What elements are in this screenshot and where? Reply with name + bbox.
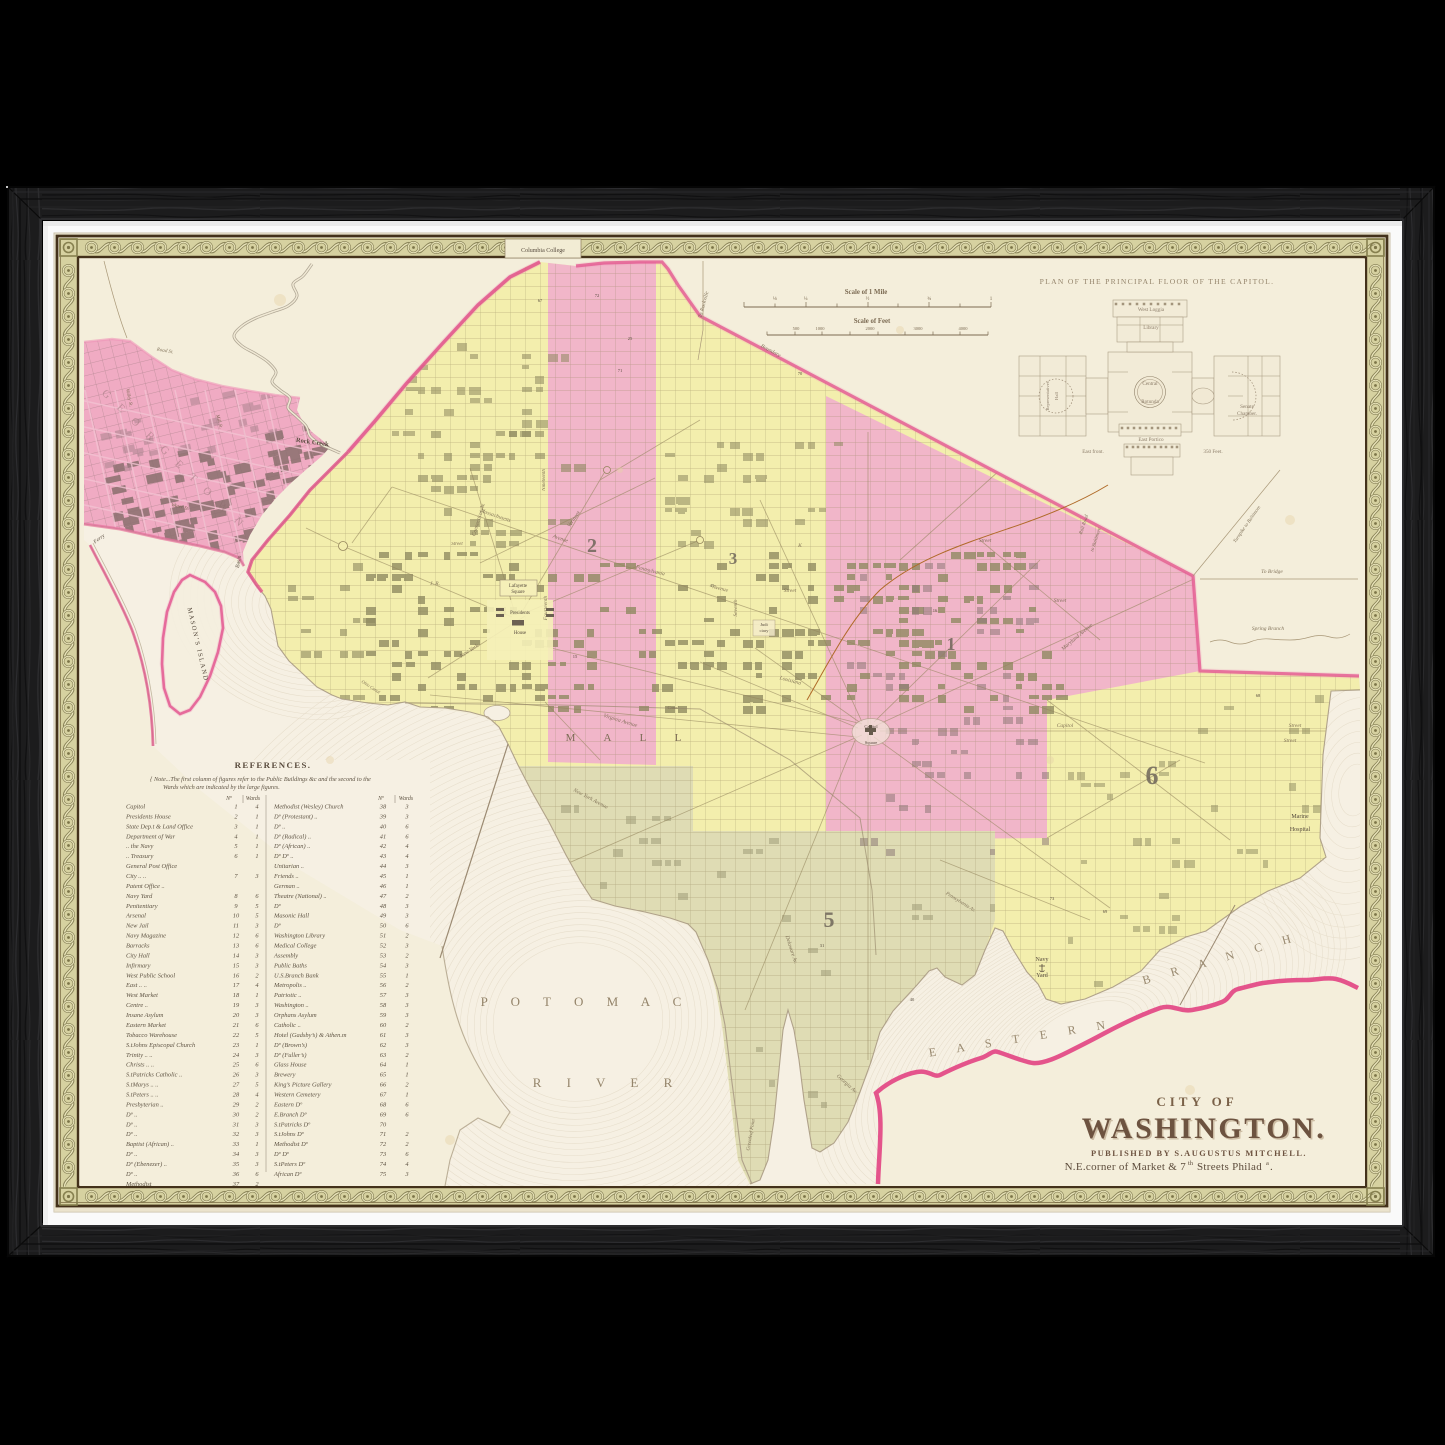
svg-text:Trinity .. ..: Trinity .. .. [126, 1052, 153, 1059]
svg-text:.: . [1270, 1161, 1273, 1173]
svg-text:40: 40 [910, 997, 915, 1002]
svg-text:1: 1 [255, 853, 258, 860]
svg-text:42: 42 [380, 843, 387, 850]
svg-text:5: 5 [255, 913, 258, 920]
svg-text:1: 1 [405, 883, 408, 890]
svg-text:75: 75 [380, 1171, 386, 1178]
svg-text:Central: Central [1142, 381, 1158, 387]
svg-text:5: 5 [824, 907, 835, 932]
svg-text:West Loggia: West Loggia [1138, 307, 1165, 313]
svg-text:.. the Navy: .. the Navy [126, 843, 153, 850]
svg-text:Dº ..: Dº .. [273, 823, 286, 830]
svg-text:Public Baths: Public Baths [273, 962, 307, 969]
svg-text:56: 56 [380, 982, 387, 989]
svg-text:68: 68 [1256, 693, 1261, 698]
svg-text:1: 1 [405, 972, 408, 979]
svg-text:3000: 3000 [914, 326, 924, 331]
svg-text:27: 27 [233, 1082, 240, 1089]
svg-text:th: th [1188, 1160, 1194, 1167]
svg-text:Dº (Brown’s): Dº (Brown’s) [273, 1042, 307, 1049]
svg-text:3: 3 [254, 1151, 258, 1158]
svg-text:72: 72 [595, 293, 600, 298]
svg-text:5: 5 [234, 843, 237, 850]
svg-text:55: 55 [380, 972, 386, 979]
svg-text:Washington ..: Washington .. [274, 1002, 309, 1009]
svg-text:14: 14 [233, 952, 240, 959]
svg-text:70: 70 [380, 1121, 387, 1128]
svg-text:Rotunda: Rotunda [1141, 399, 1159, 405]
svg-text:Hospital: Hospital [1290, 827, 1311, 833]
svg-text:African Dº: African Dº [273, 1171, 302, 1178]
svg-text:House: House [514, 631, 526, 636]
svg-text:.. Treasury: .. Treasury [126, 853, 153, 860]
svg-text:S.tMarys .. ..: S.tMarys .. .. [126, 1082, 159, 1089]
svg-text:3: 3 [404, 903, 408, 910]
svg-text:48: 48 [380, 903, 387, 910]
svg-text:3: 3 [404, 962, 408, 969]
svg-text:Square: Square [865, 740, 878, 745]
svg-text:30: 30 [232, 1111, 240, 1118]
svg-text:54: 54 [380, 962, 387, 969]
svg-text:3: 3 [404, 1171, 408, 1178]
svg-text:Scale of Feet: Scale of Feet [854, 318, 891, 325]
svg-text:50: 50 [380, 923, 387, 930]
svg-text:37: 37 [232, 1181, 240, 1188]
svg-text:1: 1 [405, 873, 408, 880]
svg-text:25: 25 [628, 336, 633, 341]
svg-text:S.tPeters Dº: S.tPeters Dº [274, 1161, 306, 1168]
svg-text:47: 47 [380, 893, 387, 900]
svg-text:S.tJohns Dº: S.tJohns Dº [274, 1131, 305, 1138]
svg-text:Brewery: Brewery [274, 1072, 296, 1079]
svg-text:43: 43 [380, 853, 386, 860]
svg-text:35: 35 [232, 1161, 239, 1168]
svg-text:Seventh: Seventh [733, 599, 739, 616]
svg-text:West Market: West Market [126, 992, 158, 999]
svg-text:Masonic Hall: Masonic Hall [273, 913, 309, 920]
svg-text:Orphans Asylum: Orphans Asylum [274, 1012, 317, 1019]
svg-text:31: 31 [820, 943, 825, 948]
svg-text:Navy Yard: Navy Yard [125, 893, 153, 900]
svg-text:R I V E R: R I V E R [533, 1075, 684, 1090]
svg-text:350 Feet.: 350 Feet. [1203, 449, 1222, 455]
svg-text:U.S.Branch Bank: U.S.Branch Bank [274, 972, 319, 979]
svg-text:57: 57 [380, 992, 387, 999]
svg-text:⅛: ⅛ [773, 297, 777, 302]
svg-text:3: 3 [729, 549, 738, 568]
svg-text:Canal: Canal [667, 705, 679, 710]
svg-text:36: 36 [232, 1171, 240, 1178]
svg-text:Presbyterian ..: Presbyterian .. [125, 1101, 164, 1108]
svg-text:500: 500 [793, 326, 801, 331]
svg-text:3: 3 [404, 1042, 408, 1049]
svg-text:1: 1 [234, 804, 237, 811]
svg-text:General Post Office: General Post Office [126, 863, 177, 870]
svg-text:3: 3 [404, 813, 408, 820]
svg-text:25: 25 [233, 1062, 239, 1069]
svg-text:16: 16 [233, 972, 240, 979]
svg-text:Presidents: Presidents [510, 611, 530, 616]
svg-text:Capitol: Capitol [1057, 723, 1074, 729]
svg-text:Baptist (African) ..: Baptist (African) .. [126, 1141, 174, 1148]
svg-text:74: 74 [380, 1161, 387, 1168]
svg-text:Columbia College: Columbia College [521, 248, 565, 254]
svg-text:City .. ..: City .. .. [126, 873, 147, 880]
svg-text:Street: Street [451, 542, 463, 547]
svg-text:52: 52 [380, 943, 387, 950]
svg-text:63: 63 [380, 1052, 386, 1059]
svg-text:49: 49 [380, 913, 387, 920]
svg-text:70: 70 [798, 371, 803, 376]
svg-text:K: K [797, 543, 802, 549]
svg-text:Theatre (National) ..: Theatre (National) .. [274, 893, 327, 900]
svg-text:2: 2 [587, 535, 597, 557]
svg-text:1: 1 [255, 1042, 258, 1049]
svg-text:40: 40 [380, 823, 387, 830]
svg-text:Unitarian ..: Unitarian .. [274, 863, 304, 870]
svg-text:1: 1 [405, 1062, 408, 1069]
svg-text:West Public School: West Public School [126, 972, 175, 979]
svg-text:Scale of 1 Mile: Scale of 1 Mile [845, 289, 887, 296]
svg-text:1: 1 [947, 634, 956, 654]
svg-text:3: 3 [254, 952, 258, 959]
svg-text:Medical College: Medical College [273, 943, 317, 950]
svg-text:Dº Dº ..: Dº Dº .. [273, 853, 294, 860]
svg-text:51: 51 [380, 933, 386, 940]
svg-text:Dº Dº: Dº Dº [273, 1151, 290, 1158]
svg-text:Hotel (Gadsby’s) & Athen.m: Hotel (Gadsby’s) & Athen.m [273, 1032, 347, 1039]
svg-text:3: 3 [254, 923, 258, 930]
svg-text:Senate: Senate [1240, 404, 1255, 410]
svg-text:73: 73 [1050, 896, 1055, 901]
svg-text:15: 15 [573, 654, 578, 659]
svg-text:23: 23 [233, 1042, 239, 1049]
svg-text:Penitentiary: Penitentiary [125, 903, 158, 910]
svg-text:17: 17 [233, 982, 240, 989]
svg-text:71: 71 [618, 368, 623, 373]
svg-text:Street: Street [1284, 738, 1297, 744]
svg-text:Hall: Hall [1054, 391, 1059, 400]
svg-text:Dº (Fuller’s): Dº (Fuller’s) [273, 1052, 306, 1059]
svg-text:44: 44 [380, 863, 387, 870]
svg-text:3: 3 [254, 873, 258, 880]
svg-text:3: 3 [254, 1072, 258, 1079]
svg-text:Wards which are indicated by t: Wards which are indicated by the large f… [163, 784, 280, 791]
svg-text:a: a [1266, 1160, 1269, 1167]
svg-text:67: 67 [538, 298, 543, 303]
svg-text:72: 72 [380, 1141, 387, 1148]
svg-text:Patriotic ..: Patriotic .. [273, 992, 302, 999]
svg-text:1: 1 [255, 843, 258, 850]
svg-text:29: 29 [233, 1101, 240, 1108]
svg-text:Spring Branch: Spring Branch [1252, 626, 1284, 632]
svg-text:21: 21 [233, 1022, 239, 1029]
svg-text:German ..: German .. [274, 883, 300, 890]
svg-text:Navy: Navy [1036, 957, 1049, 963]
svg-text:Dº ..: Dº .. [125, 1131, 138, 1138]
svg-text:46: 46 [380, 883, 387, 890]
svg-text:Navy Magazine: Navy Magazine [125, 933, 166, 940]
svg-text:18: 18 [233, 992, 240, 999]
svg-text:Glass House: Glass House [274, 1062, 307, 1069]
svg-text:6: 6 [1146, 761, 1159, 790]
svg-text:10: 10 [233, 913, 240, 920]
svg-text:Washington Library: Washington Library [274, 933, 325, 940]
svg-text:Christs .. ..: Christs .. .. [126, 1062, 154, 1069]
svg-text:60: 60 [380, 1022, 387, 1029]
svg-text:3: 3 [404, 992, 408, 999]
svg-text:3: 3 [404, 913, 408, 920]
svg-text:Square: Square [511, 590, 524, 595]
svg-text:Dº: Dº [273, 903, 282, 910]
svg-text:Catholic ..: Catholic .. [274, 1022, 301, 1029]
svg-text:3: 3 [254, 962, 258, 969]
svg-text:Methodist: Methodist [125, 1181, 152, 1188]
svg-text:12: 12 [233, 933, 240, 940]
svg-text:S.tPatricks Catholic ..: S.tPatricks Catholic .. [126, 1072, 183, 1079]
svg-text:5: 5 [255, 1082, 258, 1089]
svg-text:2000: 2000 [866, 326, 876, 331]
svg-text:Metropolis ..: Metropolis .. [273, 982, 307, 989]
svg-text:3: 3 [404, 1012, 408, 1019]
svg-text:66: 66 [380, 1082, 387, 1089]
svg-text:East front.: East front. [1082, 448, 1104, 455]
svg-text:Western Cemetery: Western Cemetery [274, 1091, 321, 1098]
svg-text:Fourteenth: Fourteenth [543, 596, 549, 622]
svg-text:24: 24 [233, 1052, 240, 1059]
svg-text:PLAN OF THE PRINCIPAL FLOOR OF: PLAN OF THE PRINCIPAL FLOOR OF THE CAPIT… [1040, 277, 1275, 286]
svg-text:Nº: Nº [377, 796, 384, 802]
svg-text:1: 1 [405, 1072, 408, 1079]
svg-text:3: 3 [254, 1052, 258, 1059]
svg-text:41: 41 [380, 833, 386, 840]
svg-text:Methodist (Wesley) Church: Methodist (Wesley) Church [273, 804, 343, 811]
svg-text:3: 3 [404, 863, 408, 870]
svg-text:New Jail: New Jail [125, 923, 149, 930]
svg-text:Friends ..: Friends .. [273, 873, 299, 880]
svg-text:Eastern Market: Eastern Market [125, 1022, 166, 1029]
svg-text:22: 22 [233, 1032, 240, 1039]
svg-text:Yard: Yard [1036, 973, 1047, 979]
svg-text:Dº ..: Dº .. [125, 1111, 138, 1118]
svg-text:Assembly: Assembly [273, 952, 298, 959]
svg-text:M A L L: M A L L [566, 732, 695, 744]
svg-text:King’s Picture Gallery: King’s Picture Gallery [273, 1082, 332, 1089]
svg-text:N.E.corner of Market & 7: N.E.corner of Market & 7 [1065, 1161, 1187, 1173]
svg-text:Dº (Protestant) ..: Dº (Protestant) .. [273, 813, 318, 820]
svg-text:1000: 1000 [816, 326, 826, 331]
svg-text:3: 3 [254, 1012, 258, 1019]
svg-text:Street: Street [1289, 723, 1302, 729]
svg-text:Street: Street [979, 538, 992, 544]
svg-text:3: 3 [254, 1131, 258, 1138]
svg-text:Dº ..: Dº .. [125, 1121, 138, 1128]
svg-text:Wards: Wards [246, 796, 261, 802]
svg-text:5: 5 [255, 1032, 258, 1039]
svg-text:32: 32 [232, 1131, 240, 1138]
svg-text:CITY OF: CITY OF [1156, 1094, 1237, 1109]
svg-text:Capitol: Capitol [126, 804, 145, 811]
svg-text:Centre ..: Centre .. [126, 1002, 148, 1009]
svg-text:Dº (Ebenezer) ..: Dº (Ebenezer) .. [125, 1161, 167, 1168]
svg-text:½: ½ [866, 297, 870, 302]
svg-text:Patent Office ..: Patent Office .. [125, 883, 165, 890]
svg-text:62: 62 [380, 1042, 387, 1049]
svg-text:28: 28 [233, 1091, 240, 1098]
svg-text:Library: Library [1143, 325, 1159, 331]
svg-text:45: 45 [710, 583, 715, 588]
svg-text:15: 15 [233, 962, 239, 969]
svg-text:20: 20 [233, 1012, 240, 1019]
svg-text:Tobacco Warehouse: Tobacco Warehouse [126, 1032, 177, 1039]
svg-text:1: 1 [255, 813, 258, 820]
svg-text:53: 53 [380, 952, 386, 959]
svg-text:34: 34 [232, 1151, 240, 1158]
svg-text:64: 64 [380, 1062, 387, 1069]
svg-text:Eastern Dº: Eastern Dº [273, 1101, 303, 1108]
svg-text:WASHINGTON.: WASHINGTON. [1082, 1112, 1327, 1145]
svg-text:59: 59 [380, 1012, 387, 1019]
svg-text:Nineteenth: Nineteenth [542, 469, 547, 492]
svg-text:3: 3 [404, 1032, 408, 1039]
svg-text:P O T O M A C: P O T O M A C [481, 994, 692, 1009]
svg-text:J. R.: J. R. [430, 581, 440, 587]
svg-text:39: 39 [379, 813, 387, 820]
svg-text:3: 3 [404, 943, 408, 950]
svg-text:38: 38 [379, 804, 387, 811]
svg-text:East .. ..: East .. .. [125, 982, 147, 989]
svg-text:Department of War: Department of War [125, 833, 176, 840]
svg-text:3: 3 [254, 1002, 258, 1009]
svg-text:58: 58 [380, 1002, 387, 1009]
svg-text:City Hall: City Hall [126, 952, 150, 959]
svg-text:To Bridge: To Bridge [1261, 569, 1283, 575]
svg-text:Dº (Radical) ..: Dº (Radical) .. [273, 833, 312, 840]
svg-text:3: 3 [404, 1002, 408, 1009]
svg-text:Dº ..: Dº .. [125, 1171, 138, 1178]
svg-text:3: 3 [233, 823, 237, 830]
svg-text:71: 71 [380, 1131, 386, 1138]
svg-text:68: 68 [380, 1101, 387, 1108]
svg-text:Nº: Nº [225, 796, 232, 802]
svg-text:45: 45 [380, 873, 386, 880]
svg-text:Barracks: Barracks [126, 943, 150, 950]
svg-text:S.tPatricks Dº: S.tPatricks Dº [274, 1121, 311, 1128]
svg-text:¾: ¾ [927, 297, 931, 302]
svg-text:Street: Street [1054, 598, 1067, 604]
svg-text:Wards: Wards [399, 796, 414, 802]
svg-text:ciary: ciary [760, 628, 770, 633]
svg-text:Chamber.: Chamber. [1237, 411, 1257, 417]
svg-text:Dº ..: Dº .. [125, 1151, 138, 1158]
svg-text:1: 1 [255, 833, 258, 840]
svg-text:Marine: Marine [1291, 814, 1309, 820]
svg-text:Streets Philad: Streets Philad [1197, 1161, 1262, 1173]
svg-text:Street: Street [784, 588, 797, 594]
svg-text:1: 1 [255, 1141, 258, 1148]
svg-text:13: 13 [233, 943, 239, 950]
svg-text:67: 67 [380, 1091, 387, 1098]
svg-text:1: 1 [255, 992, 258, 999]
svg-text:Methodist Dº: Methodist Dº [273, 1141, 309, 1148]
svg-text:69: 69 [1103, 909, 1108, 914]
svg-text:S.tPeters .. ..: S.tPeters .. .. [126, 1091, 159, 1098]
svg-text:31: 31 [232, 1121, 239, 1128]
svg-text:Lafayette: Lafayette [509, 584, 527, 589]
svg-text:26: 26 [233, 1072, 240, 1079]
svg-text:Insane Asylum: Insane Asylum [125, 1012, 164, 1019]
svg-text:Dº (African) ..: Dº (African) .. [273, 843, 311, 850]
svg-text:¼: ¼ [804, 297, 808, 302]
svg-text:Judi: Judi [760, 622, 768, 627]
svg-text:1: 1 [405, 1091, 408, 1098]
svg-text:3: 3 [404, 804, 408, 811]
svg-text:E.Branch Dº: E.Branch Dº [273, 1111, 308, 1118]
svg-text:Capitol: Capitol [864, 724, 878, 729]
svg-text:4000: 4000 [959, 326, 969, 331]
svg-text:S.tJohns Episcopal Church: S.tJohns Episcopal Church [126, 1042, 195, 1049]
svg-text:3: 3 [254, 1161, 258, 1168]
svg-text:{ Note...The first column of f: { Note...The first column of figures ref… [150, 776, 371, 783]
svg-text:Arsenal: Arsenal [125, 913, 146, 920]
svg-text:11: 11 [233, 923, 239, 930]
svg-text:3: 3 [254, 1121, 258, 1128]
svg-text:19: 19 [233, 1002, 240, 1009]
svg-text:Presidents House: Presidents House [125, 813, 171, 820]
svg-text:33: 33 [232, 1141, 239, 1148]
svg-text:Representatives: Representatives [1045, 381, 1050, 410]
svg-text:REFERENCES.: REFERENCES. [235, 760, 312, 770]
svg-text:Dº: Dº [273, 923, 282, 930]
svg-text:State Dep.t & Land Office: State Dep.t & Land Office [126, 823, 193, 830]
svg-text:Infirmary: Infirmary [125, 962, 151, 969]
svg-text:PUBLISHED BY S.AUGUSTUS MITCHE: PUBLISHED BY S.AUGUSTUS MITCHELL. [1091, 1149, 1307, 1158]
svg-text:East Portico: East Portico [1138, 437, 1164, 443]
svg-text:65: 65 [380, 1072, 386, 1079]
svg-text:1: 1 [255, 823, 258, 830]
svg-text:73: 73 [380, 1151, 386, 1158]
svg-text:61: 61 [380, 1032, 386, 1039]
svg-text:69: 69 [380, 1111, 387, 1118]
svg-text:16: 16 [933, 608, 938, 613]
svg-text:5: 5 [255, 903, 258, 910]
